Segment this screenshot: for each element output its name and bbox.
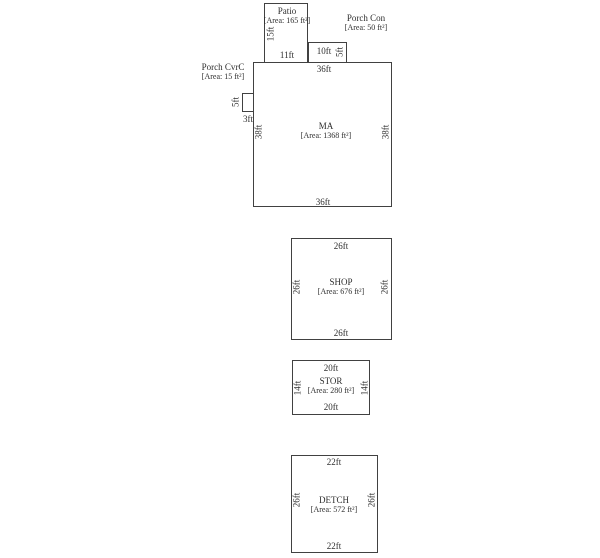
porch-cvrc-name: Porch CvrC: [202, 62, 245, 72]
ma-name: MA: [301, 121, 351, 131]
porch-cvrc-dim-bottom: 3ft: [243, 114, 253, 124]
ma-area: [Area: 1368 ft²]: [301, 131, 351, 140]
porch-con-dim-top: 10ft: [317, 46, 332, 56]
shop-area: [Area: 676 ft²]: [318, 287, 364, 296]
detch-dim-bottom: 22ft: [327, 541, 342, 551]
porch-con-name: Porch Con: [345, 13, 387, 23]
shop-dim-top: 26ft: [334, 241, 349, 251]
detch-dim-top: 22ft: [327, 457, 342, 467]
patio-name: Patio: [264, 6, 310, 16]
shop-dim-bottom: 26ft: [334, 328, 349, 338]
detch-area: [Area: 572 ft²]: [311, 505, 357, 514]
patio-label: Patio [Area: 165 ft²]: [264, 6, 310, 25]
shop-dim-right: 26ft: [381, 280, 390, 295]
porch-cvrc-label: Porch CvrC [Area: 15 ft²]: [202, 62, 245, 81]
shop-name: SHOP: [318, 277, 364, 287]
porch-con-dim-right: 5ft: [336, 47, 345, 57]
ma-dim-bottom: 36ft: [316, 197, 331, 207]
property-sketch-diagram: 36ft 36ft 38ft 38ft MA [Area: 1368 ft²] …: [0, 0, 600, 558]
ma-dim-top: 36ft: [317, 64, 332, 74]
porch-cvrc-dim-left: 5ft: [232, 97, 241, 107]
stor-dim-bottom: 20ft: [324, 402, 339, 412]
stor-dim-right: 14ft: [361, 381, 370, 396]
porch-con-label: Porch Con [Area: 50 ft²]: [345, 13, 387, 32]
stor-label: STOR [Area: 280 ft²]: [308, 376, 354, 395]
stor-area: [Area: 280 ft²]: [308, 386, 354, 395]
detch-label: DETCH [Area: 572 ft²]: [311, 495, 357, 514]
patio-dim-left: 15ft: [267, 27, 276, 42]
ma-dim-left: 38ft: [255, 125, 264, 140]
patio-area: [Area: 165 ft²]: [264, 16, 310, 25]
porch-con-area: [Area: 50 ft²]: [345, 23, 387, 32]
detch-dim-right: 26ft: [368, 493, 377, 508]
shop-dim-left: 26ft: [293, 280, 302, 295]
shop-label: SHOP [Area: 676 ft²]: [318, 277, 364, 296]
stor-dim-top: 20ft: [324, 363, 339, 373]
ma-label: MA [Area: 1368 ft²]: [301, 121, 351, 140]
porch-cvrc-outline: [242, 93, 254, 112]
stor-name: STOR: [308, 376, 354, 386]
stor-dim-left: 14ft: [294, 381, 303, 396]
detch-dim-left: 26ft: [293, 493, 302, 508]
patio-dim-bottom: 11ft: [280, 50, 294, 60]
detch-name: DETCH: [311, 495, 357, 505]
ma-dim-right: 38ft: [382, 125, 391, 140]
porch-cvrc-area: [Area: 15 ft²]: [202, 72, 245, 81]
